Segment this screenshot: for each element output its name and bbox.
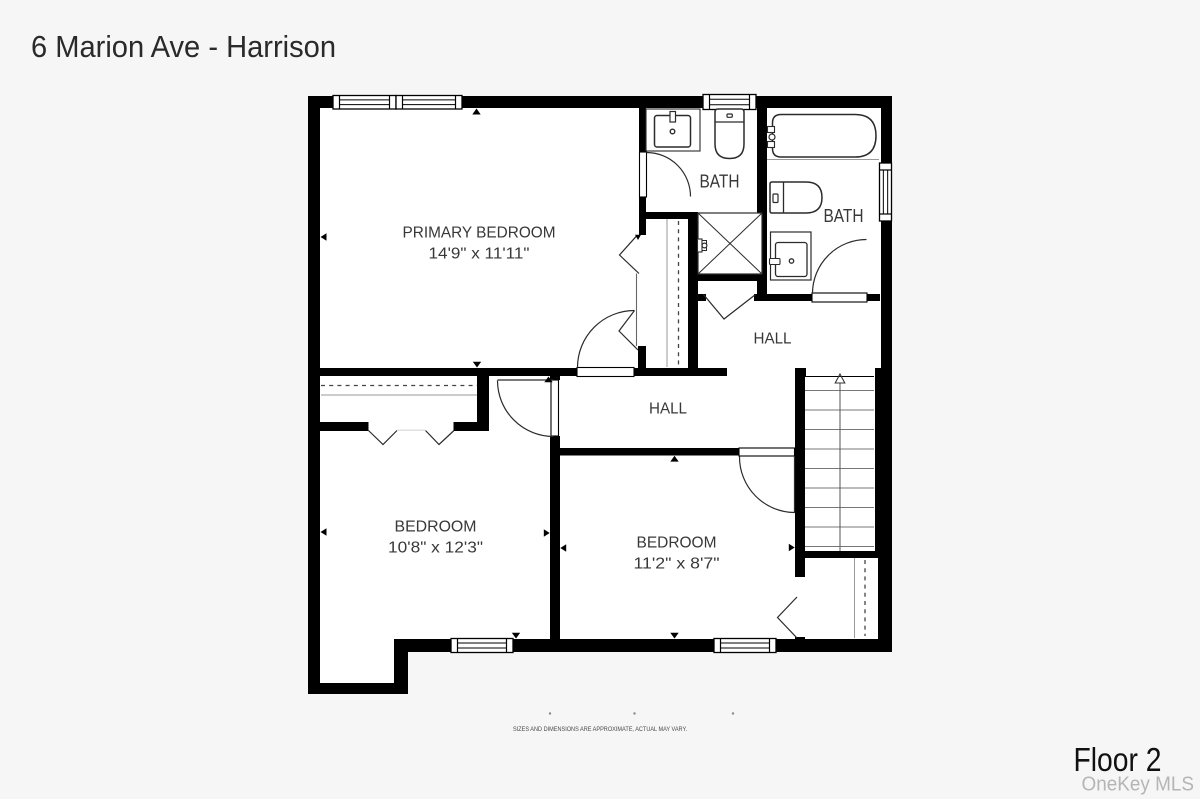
svg-text:HALL: HALL	[754, 331, 792, 348]
svg-text:14'9" x 11'11": 14'9" x 11'11"	[429, 246, 530, 263]
svg-text:SIZES AND DIMENSIONS ARE APPRO: SIZES AND DIMENSIONS ARE APPROXIMATE, AC…	[513, 726, 687, 733]
svg-text:6 Marion Ave - Harrison: 6 Marion Ave - Harrison	[31, 29, 336, 64]
svg-text:10'8" x 12'3": 10'8" x 12'3"	[388, 540, 483, 557]
svg-text:HALL: HALL	[649, 401, 687, 418]
svg-text:BEDROOM: BEDROOM	[395, 519, 477, 536]
svg-text:PRIMARY BEDROOM: PRIMARY BEDROOM	[403, 225, 556, 242]
svg-text:11'2" x 8'7": 11'2" x 8'7"	[634, 556, 720, 573]
svg-text:BATH: BATH	[700, 172, 740, 192]
svg-text:Floor 2: Floor 2	[1074, 741, 1162, 778]
svg-text:BEDROOM: BEDROOM	[637, 535, 717, 552]
svg-text:BATH: BATH	[824, 206, 864, 226]
svg-text:OneKey MLS: OneKey MLS	[1082, 774, 1195, 796]
